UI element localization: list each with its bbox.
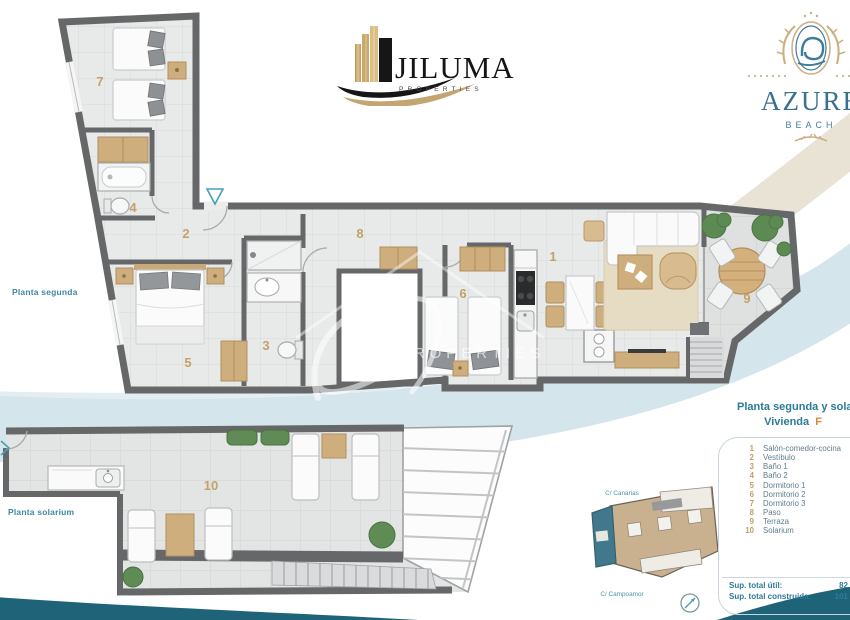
azure-tagline: BEACH (745, 120, 850, 130)
room-number-4: 4 (129, 200, 137, 215)
legend-number: 2 (736, 453, 754, 462)
legend-number: 5 (736, 481, 754, 490)
panel-title: Planta segunda y solarium (737, 401, 850, 413)
total-label: Sup. total construida: (729, 592, 811, 601)
total-label: Sup. total útil: (729, 581, 782, 590)
room-number-6: 6 (459, 286, 466, 301)
room-number-3: 3 (262, 338, 269, 353)
room-number-1: 1 (549, 249, 556, 264)
legend-label: Terraza (763, 517, 789, 526)
street-label-top: C/ Canarias (605, 490, 639, 497)
azure-leaf-icon (745, 130, 850, 144)
jiluma-name: JILUMA (395, 50, 515, 86)
legend-item: 6Dormitorio 2 (736, 490, 841, 499)
legend-label: Dormitorio 2 (763, 490, 805, 499)
jiluma-logo: JILUMA PROPERTIES (333, 10, 533, 106)
floorplan-solarium: 10 (1, 426, 516, 592)
room-number-10: 10 (204, 478, 218, 493)
solarium-counter (48, 466, 124, 490)
legend-number: 9 (736, 517, 754, 526)
street-label-bottom: C/ Campoamor (600, 591, 644, 598)
room-number-5: 5 (184, 355, 191, 370)
legend-item: 5Dormitorio 1 (736, 481, 841, 490)
brochure-page: 7 4 2 8 5 3 6 1 9 (0, 0, 850, 620)
legend-number: 6 (736, 490, 754, 499)
courtyard-void (339, 271, 420, 384)
legend-label: Dormitorio 1 (763, 481, 805, 490)
vivienda-value: F (815, 416, 822, 428)
legend-label: Solarium (763, 526, 794, 535)
total-value: 101 (835, 592, 848, 601)
legend-label: Salón-comedor-cocina (763, 444, 841, 453)
azure-emblem-icon (745, 6, 850, 84)
room-number-2: 2 (182, 226, 189, 241)
total-value: 82 (839, 581, 848, 590)
legend-item: 7Dormitorio 3 (736, 499, 841, 508)
total-row: Sup. total construida: 101 (729, 592, 848, 601)
legend-label: Dormitorio 3 (763, 499, 805, 508)
legend-label: Vestíbulo (763, 453, 795, 462)
legend-number: 10 (736, 526, 754, 535)
stairs-segunda (688, 337, 724, 378)
legend-number: 4 (736, 471, 754, 480)
legend-list: 1Salón-comedor-cocina 2Vestíbulo 3Baño 1… (736, 444, 841, 535)
legend-label: Baño 1 (763, 462, 788, 471)
legend-item: 9Terraza (736, 517, 841, 526)
legend-item: 4Baño 2 (736, 471, 841, 480)
legend-item: 1Salón-comedor-cocina (736, 444, 841, 453)
total-row: Sup. total útil: 82 (729, 581, 848, 590)
legend-number: 8 (736, 508, 754, 517)
label-planta-segunda: Planta segunda (12, 287, 78, 297)
vivienda-line: Vivienda F (720, 416, 850, 428)
totals-divider (722, 577, 850, 578)
azure-name: AZURE (745, 86, 850, 117)
site-map: C/ Canarias C/ Campoamor (592, 487, 718, 612)
legend-number: 7 (736, 499, 754, 508)
legend-item: 3Baño 1 (736, 462, 841, 471)
legend-number: 3 (736, 462, 754, 471)
vivienda-label: Vivienda (764, 416, 809, 428)
legend-label: Paso (763, 508, 781, 517)
legend-item: 2Vestíbulo (736, 453, 841, 462)
watermark-text: PROPERTIES (399, 345, 545, 362)
compass-icon (681, 594, 699, 612)
room-number-9: 9 (743, 291, 750, 306)
room-number-7: 7 (96, 74, 103, 89)
azure-logo: AZURE BEACH (745, 6, 850, 156)
label-planta-solarium: Planta solarium (8, 507, 74, 517)
legend-label: Baño 2 (763, 471, 788, 480)
legend-number: 1 (736, 444, 754, 453)
jiluma-tagline: PROPERTIES (399, 86, 483, 93)
legend-item: 8Paso (736, 508, 841, 517)
legend-item: 10Solarium (736, 526, 841, 535)
room-number-8: 8 (356, 226, 363, 241)
